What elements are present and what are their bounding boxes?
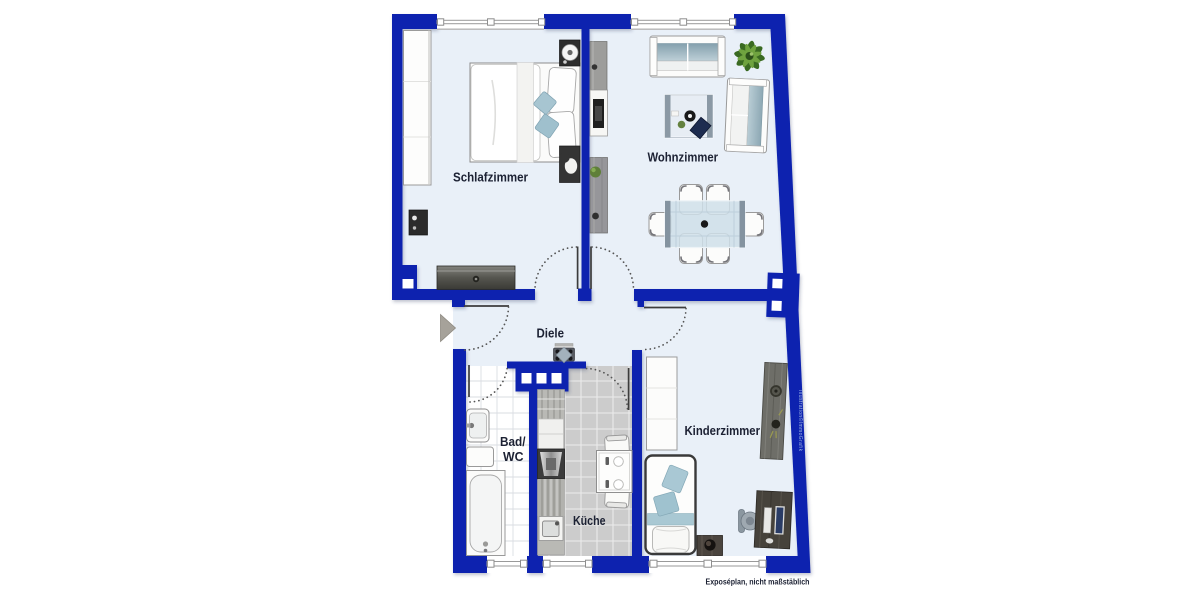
svg-text:Diele: Diele <box>537 326 565 341</box>
svg-text:Illustration©ImmoGrafik: Illustration©ImmoGrafik <box>797 390 804 452</box>
svg-text:Wohnzimmer: Wohnzimmer <box>648 150 719 165</box>
svg-text:Kinderzimmer: Kinderzimmer <box>685 423 761 438</box>
svg-text:Exposéplan, nicht maßstäblich: Exposéplan, nicht maßstäblich <box>706 577 810 587</box>
svg-text:WC: WC <box>503 449 524 464</box>
svg-text:Küche: Küche <box>573 513 606 528</box>
svg-text:Bad/: Bad/ <box>500 434 526 449</box>
svg-text:Schlafzimmer: Schlafzimmer <box>453 170 528 185</box>
